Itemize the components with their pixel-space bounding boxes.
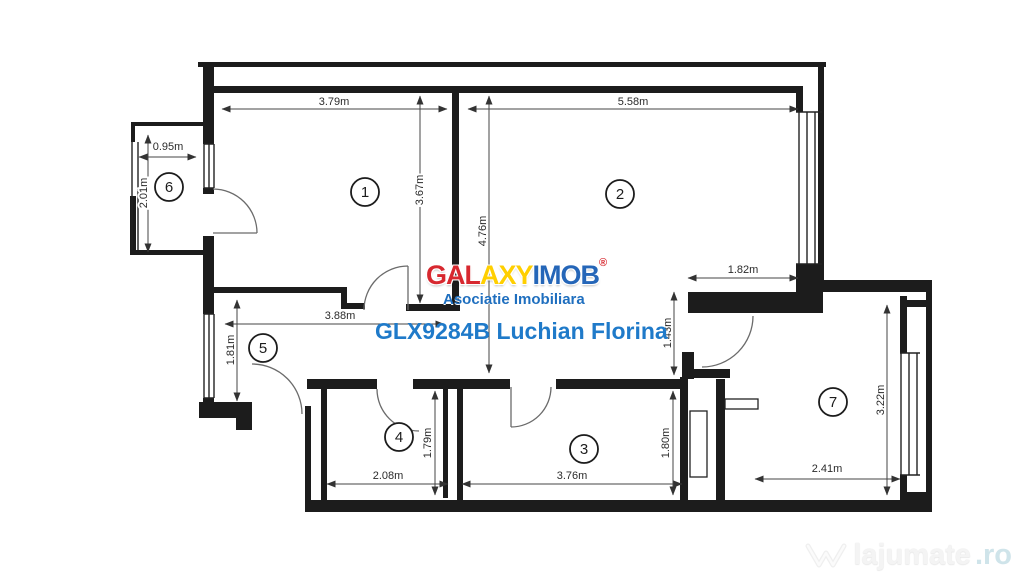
dim-room1-width: 3.79m [319,96,350,108]
dim-balcony-depth: 2.01m [138,178,150,209]
radiator [690,411,707,477]
logo-subtitle: Asociatie Imobiliara [443,291,585,308]
room-number-5: 5 [259,340,267,357]
dim-hallway-depth: 1.81m [225,335,237,366]
room-number-7: 7 [829,394,837,411]
dim-room7-depth: 3.22m [875,385,887,416]
room7-window [900,353,920,475]
balcony-door-arc [213,189,257,233]
listing-code-line: GLX9284B Luchian Florina [375,318,668,345]
room-badge-7: 7 [819,388,847,416]
dim-room4-width: 2.08m [373,470,404,482]
hallway-door-arc [252,364,302,414]
room-badge-2: 2 [606,180,634,208]
logo-segment-gal: GAL [426,260,480,290]
dim-room1-depth: 3.67m [414,175,426,206]
room-badge-3: 3 [570,435,598,463]
dim-hallway-width: 3.88m [325,310,356,322]
dim-balcony-width: 0.95m [153,141,184,153]
dim-room3-width: 3.76m [557,470,588,482]
logo-segment-imob: IMOB [533,260,600,290]
room-number-6: 6 [165,179,173,196]
entry-door-arc [702,316,753,367]
room1-door-arc [364,266,408,310]
registered-trademark-icon: ® [599,257,607,269]
room-badge-6: 6 [155,173,183,201]
logo-segment-axy: AXY [480,260,533,290]
watermark-tld-text: .ro [975,539,1012,572]
room-badge-4: 4 [385,423,413,451]
dim-entry-width: 1.82m [728,264,759,276]
hallway-window [204,314,214,398]
dim-room2-width: 5.58m [618,96,649,108]
room3-door-arc [511,387,551,427]
dim-room2-depth: 4.76m [477,216,489,247]
room1-balcony-window [204,144,214,188]
room-number-3: 3 [580,441,588,458]
room-number-1: 1 [361,184,369,201]
room-number-4: 4 [395,429,403,446]
lajumate-watermark: lajumate.ro [803,539,1012,572]
dim-room4-depth: 1.79m [422,428,434,459]
dim-room3-depth: 1.80m [660,428,672,459]
room-number-2: 2 [616,186,624,203]
galaxyimob-logo: GALAXYIMOB® [426,262,607,289]
floor-plan-screenshot: 3.79m 5.58m 0.95m 1.82m 3.88m 2.08m 3.76… [0,0,1024,576]
lajumate-logo-icon [803,540,849,572]
shelf [725,399,758,409]
room-badge-1: 1 [351,178,379,206]
watermark-brand-text: lajumate [853,539,971,572]
room-badge-5: 5 [249,334,277,362]
dim-room7-width: 2.41m [812,463,843,475]
